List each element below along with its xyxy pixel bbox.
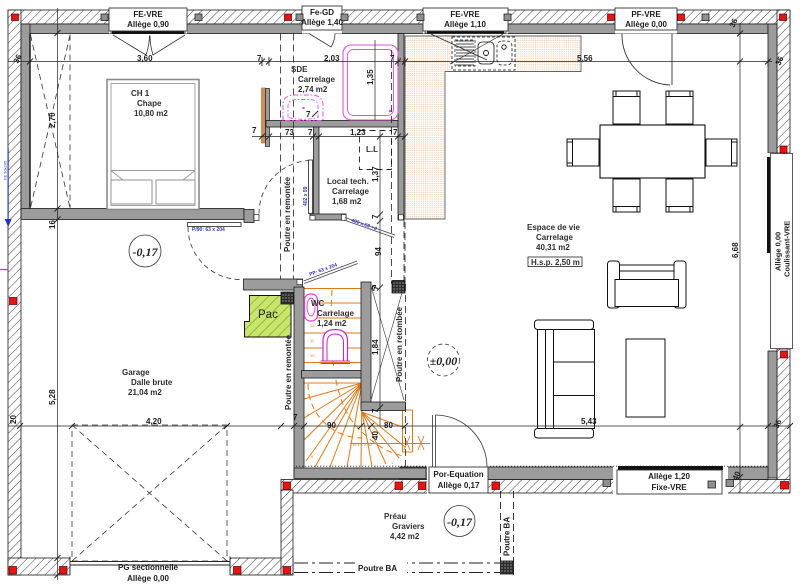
- svg-text:16: 16: [48, 220, 57, 229]
- svg-text:1,84: 1,84: [371, 339, 380, 355]
- svg-text:L.L: L.L: [366, 145, 378, 154]
- svg-text:Pac: Pac: [258, 309, 278, 321]
- svg-text:Local tech.: Local tech.: [327, 177, 369, 186]
- svg-text:PF-VRE: PF-VRE: [631, 10, 661, 19]
- svg-text:Allège 0,00: Allège 0,00: [625, 20, 667, 29]
- svg-text:Allège 0,00: Allège 0,00: [127, 574, 169, 583]
- svg-text:Dalle brute: Dalle brute: [131, 378, 173, 387]
- svg-text:7: 7: [252, 126, 257, 135]
- svg-text:FE-VRE: FE-VRE: [133, 10, 163, 19]
- svg-text:Allège 0,90: Allège 0,90: [127, 20, 169, 29]
- svg-text:Poutre en remontée: Poutre en remontée: [283, 176, 292, 252]
- svg-text:5,28: 5,28: [48, 389, 57, 405]
- svg-text:Allège 1,10: Allège 1,10: [444, 20, 486, 29]
- svg-text:Espace de vie: Espace de vie: [527, 223, 580, 232]
- svg-text:402 x 59: 402 x 59: [303, 186, 309, 206]
- svg-text:P/90: 63 x 204: P/90: 63 x 204: [192, 227, 225, 233]
- svg-text:Chape: Chape: [137, 99, 162, 108]
- svg-text:40,31 m2: 40,31 m2: [536, 243, 570, 252]
- svg-text:Allège 0,17: Allège 0,17: [438, 481, 480, 490]
- svg-text:Fe-GD: Fe-GD: [310, 8, 334, 17]
- svg-text:15 x = 2,60: 15 x = 2,60: [352, 442, 373, 447]
- svg-text:7: 7: [308, 128, 313, 137]
- svg-text:6,68: 6,68: [731, 242, 740, 258]
- svg-text:PG sectionnelle: PG sectionnelle: [118, 563, 179, 572]
- svg-text:10: 10: [310, 353, 315, 358]
- svg-text:7: 7: [257, 54, 262, 63]
- svg-text:Carrelage: Carrelage: [536, 233, 573, 242]
- svg-text:7: 7: [371, 214, 380, 219]
- svg-text:7: 7: [371, 408, 380, 413]
- svg-text:Carrelage: Carrelage: [332, 187, 369, 196]
- svg-text:±0,00: ±0,00: [430, 354, 458, 368]
- svg-text:1,24 m2: 1,24 m2: [317, 319, 347, 328]
- svg-text:4,42 m2: 4,42 m2: [390, 532, 420, 541]
- svg-text:Poutre BA: Poutre BA: [503, 517, 512, 556]
- svg-text:-0,17: -0,17: [447, 515, 473, 529]
- svg-text:Poutre en remontée: Poutre en remontée: [284, 334, 293, 410]
- svg-text:20: 20: [9, 415, 18, 424]
- svg-text:Por-Equation: Por-Equation: [433, 470, 483, 479]
- svg-text:10,80 m2: 10,80 m2: [134, 109, 168, 118]
- svg-text:Préau: Préau: [384, 512, 406, 521]
- svg-text:2,74 m2: 2,74 m2: [298, 85, 328, 94]
- svg-text:H.s.p. 2,50 m: H.s.p. 2,50 m: [531, 258, 580, 267]
- svg-text:4,20: 4,20: [146, 417, 162, 426]
- svg-text:7: 7: [393, 128, 398, 137]
- svg-text:1,35: 1,35: [366, 69, 375, 85]
- svg-text:40: 40: [371, 431, 380, 440]
- svg-text:SDE: SDE: [291, 65, 308, 74]
- svg-text:Coulissant-VRE: Coulissant-VRE: [783, 221, 792, 277]
- svg-text:7: 7: [372, 284, 377, 293]
- svg-text:Graviers: Graviers: [392, 522, 425, 531]
- svg-text:7: 7: [306, 110, 311, 119]
- svg-text:1,37: 1,37: [371, 166, 380, 182]
- svg-text:73: 73: [285, 128, 294, 137]
- svg-text:Poutre en retombée: Poutre en retombée: [395, 306, 404, 382]
- svg-text:21,04 m2: 21,04 m2: [128, 388, 162, 397]
- svg-text:Carrelage: Carrelage: [298, 75, 335, 84]
- svg-text:1,68 m2: 1,68 m2: [332, 197, 362, 206]
- svg-text:Carrelage: Carrelage: [317, 309, 354, 318]
- svg-text:Allège 0,00: Allège 0,00: [774, 232, 783, 271]
- svg-text:90: 90: [327, 421, 336, 430]
- svg-text:94: 94: [374, 247, 383, 256]
- svg-text:Poutre BA: Poutre BA: [358, 564, 397, 573]
- svg-text:12: 12: [310, 323, 315, 328]
- svg-text:5,56: 5,56: [577, 54, 593, 63]
- svg-text:5,43: 5,43: [581, 417, 597, 426]
- svg-text:Fixe-VRE: Fixe-VRE: [651, 483, 687, 492]
- svg-text:FE-VRE: FE-VRE: [450, 10, 480, 19]
- svg-text:FE 90x205: FE 90x205: [3, 160, 8, 180]
- svg-text:80: 80: [384, 421, 393, 430]
- svg-text:Allège 1,20: Allège 1,20: [648, 472, 690, 481]
- svg-text:CH 1: CH 1: [131, 89, 150, 98]
- svg-text:2,03: 2,03: [324, 54, 340, 63]
- svg-text:-0,17: -0,17: [133, 245, 159, 259]
- svg-text:2,70: 2,70: [48, 112, 57, 128]
- svg-text:7: 7: [390, 54, 395, 63]
- svg-text:Garage: Garage: [122, 368, 150, 377]
- svg-text:WC: WC: [311, 299, 325, 308]
- svg-text:Allège 1,40: Allège 1,40: [301, 18, 343, 27]
- svg-text:3,60: 3,60: [137, 54, 153, 63]
- svg-text:1,23: 1,23: [350, 128, 366, 137]
- svg-text:7: 7: [293, 413, 298, 422]
